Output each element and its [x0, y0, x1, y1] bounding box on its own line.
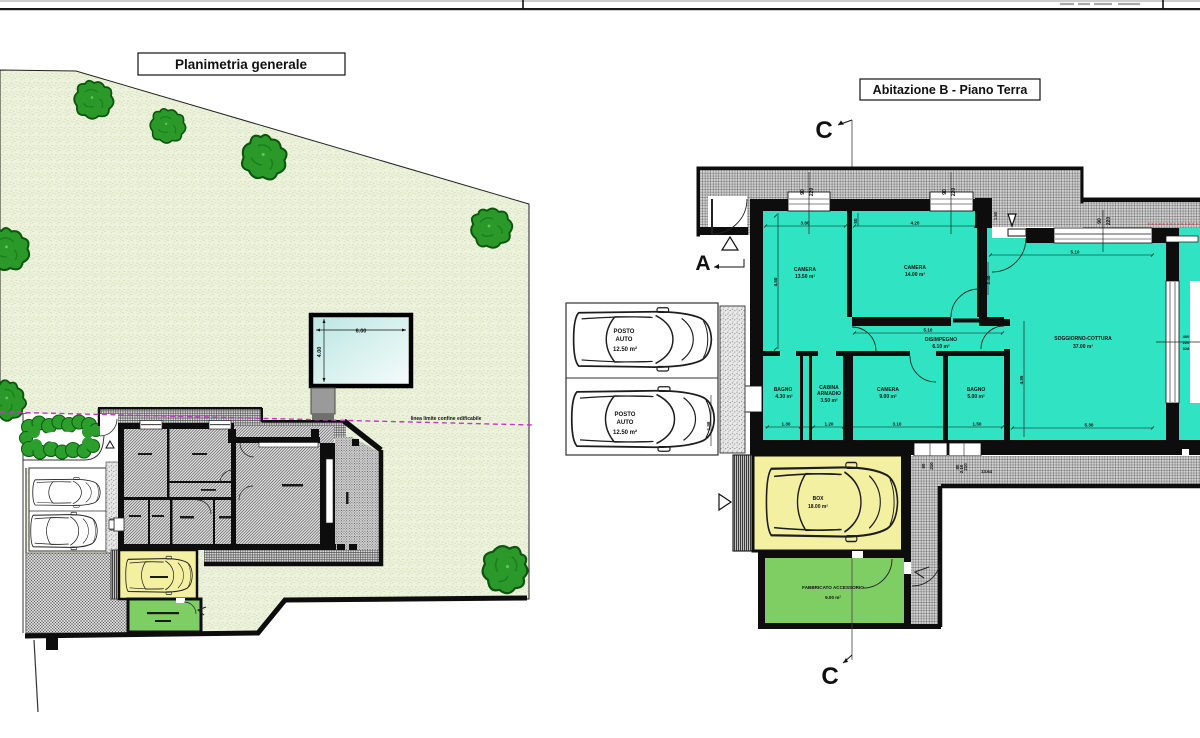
svg-text:210: 210	[929, 462, 934, 470]
svg-text:4.00: 4.00	[317, 347, 323, 358]
svg-text:6.10 m²: 6.10 m²	[932, 344, 950, 350]
svg-text:5.30: 5.30	[1085, 423, 1094, 428]
svg-text:1.20: 1.20	[825, 422, 834, 427]
svg-text:5.00 m²: 5.00 m²	[967, 394, 985, 400]
svg-text:13.64: 13.64	[981, 469, 993, 474]
svg-text:DISIMPEGNO: DISIMPEGNO	[925, 337, 957, 343]
svg-text:ARMADIO: ARMADIO	[817, 391, 841, 397]
svg-text:90: 90	[1097, 218, 1103, 224]
svg-text:BAGNO: BAGNO	[967, 387, 986, 393]
svg-text:80: 80	[921, 463, 926, 468]
svg-text:3.50 m²: 3.50 m²	[820, 398, 838, 404]
svg-text:6.00: 6.00	[356, 329, 367, 335]
svg-text:9.00 m²: 9.00 m²	[879, 394, 897, 400]
svg-text:AUTO: AUTO	[617, 420, 634, 426]
svg-text:12.50 m²: 12.50 m²	[613, 346, 637, 353]
svg-text:220: 220	[1183, 340, 1190, 345]
svg-text:400: 400	[1183, 334, 1190, 339]
svg-text:50: 50	[853, 218, 858, 224]
svg-text:1.30: 1.30	[782, 422, 791, 427]
svg-text:220: 220	[951, 188, 957, 197]
svg-text:3.80: 3.80	[801, 221, 810, 226]
svg-text:CAMERA: CAMERA	[904, 265, 926, 271]
svg-text:SOGGIORNO-COTTURA: SOGGIORNO-COTTURA	[1054, 336, 1112, 342]
svg-text:37.00 m²: 37.00 m²	[1073, 344, 1093, 350]
svg-text:1.50: 1.50	[973, 422, 982, 427]
svg-text:AUTO: AUTO	[616, 337, 633, 343]
svg-text:210: 210	[963, 463, 968, 471]
svg-text:14.00 m²: 14.00 m²	[905, 272, 925, 278]
svg-text:328: 328	[1183, 346, 1190, 351]
svg-text:4.95: 4.95	[1019, 375, 1024, 384]
svg-text:1.98: 1.98	[706, 421, 711, 430]
svg-text:5.10: 5.10	[924, 328, 933, 333]
svg-text:CAMERA: CAMERA	[794, 267, 816, 273]
svg-text:5.10: 5.10	[1071, 250, 1080, 255]
svg-text:4.50: 4.50	[773, 277, 778, 286]
svg-text:CAMERA: CAMERA	[877, 387, 899, 393]
svg-text:80: 80	[955, 464, 960, 469]
svg-text:linea limite confine edificabi: linea limite confine edificabile	[411, 416, 482, 422]
svg-text:POSTO: POSTO	[614, 329, 635, 335]
svg-text:A: A	[695, 252, 710, 275]
svg-text:13.50 m²: 13.50 m²	[795, 274, 815, 280]
svg-text:4.30 m²: 4.30 m²	[775, 394, 793, 400]
svg-text:12.50 m²: 12.50 m²	[613, 429, 637, 436]
svg-text:90: 90	[800, 189, 806, 195]
svg-text:1.50: 1.50	[993, 211, 998, 220]
svg-text:220: 220	[1106, 217, 1112, 226]
svg-text:C: C	[821, 663, 838, 690]
svg-text:BOX: BOX	[813, 496, 825, 502]
svg-text:Planimetria generale: Planimetria generale	[175, 57, 308, 72]
svg-text:220: 220	[809, 188, 815, 197]
svg-text:3.10: 3.10	[893, 422, 902, 427]
svg-text:FABBRICATO ACCESSORIO: FABBRICATO ACCESSORIO	[802, 585, 864, 590]
svg-text:Abitazione B - Piano Terra: Abitazione B - Piano Terra	[873, 83, 1029, 97]
svg-text:18.00 m²: 18.00 m²	[808, 504, 828, 510]
svg-text:C: C	[815, 117, 832, 144]
svg-text:4.20: 4.20	[911, 221, 920, 226]
svg-text:2.40: 2.40	[986, 275, 991, 284]
svg-text:BAGNO: BAGNO	[774, 387, 793, 393]
svg-text:90: 90	[942, 189, 948, 195]
svg-text:9.00 m²: 9.00 m²	[825, 595, 841, 600]
svg-text:POSTO: POSTO	[615, 412, 636, 418]
